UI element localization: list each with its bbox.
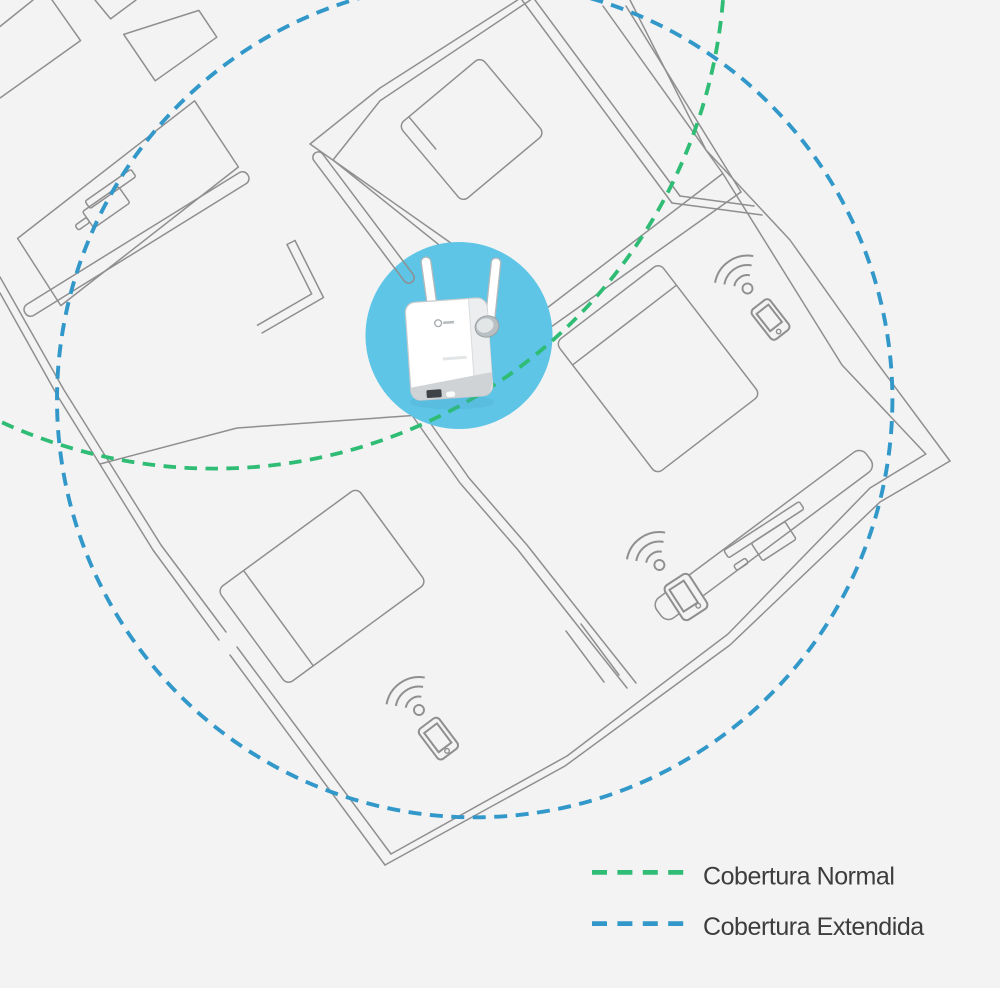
svg-text:Cobertura Extendida: Cobertura Extendida — [703, 913, 924, 941]
svg-text:Cobertura Normal: Cobertura Normal — [703, 863, 894, 891]
